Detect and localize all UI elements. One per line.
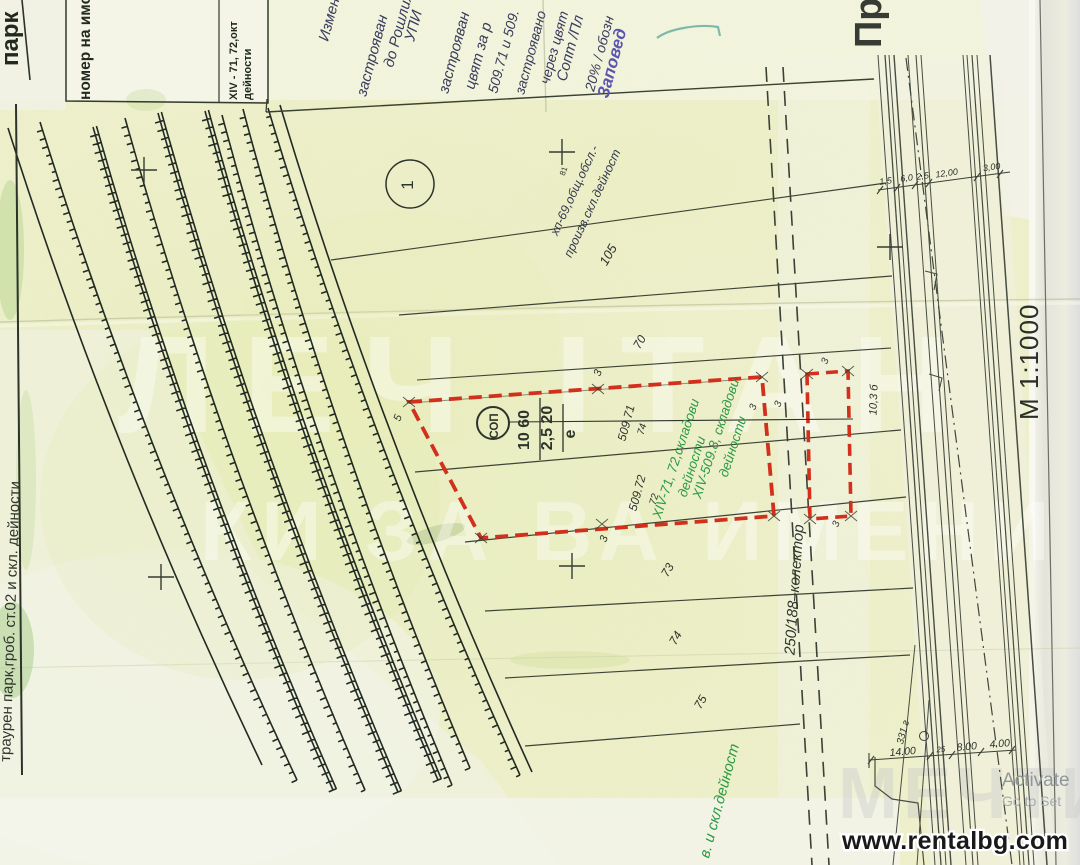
svg-text:Go to Set: Go to Set	[1002, 793, 1061, 809]
svg-text:14.00: 14.00	[889, 745, 916, 759]
svg-text:2,5: 2,5	[915, 170, 931, 182]
svg-text:25: 25	[935, 745, 946, 755]
svg-text:СОП: СОП	[489, 413, 501, 438]
svg-text:2,5 20: 2,5 20	[539, 406, 556, 451]
svg-text:1,5: 1,5	[879, 175, 894, 187]
svg-text:Activate: Activate	[1002, 770, 1070, 791]
svg-text:www.rentalbg.com: www.rentalbg.com	[841, 827, 1068, 855]
svg-text:парк: парк	[0, 10, 24, 66]
svg-text:1: 1	[398, 180, 417, 189]
svg-text:номер на имо: номер на имо	[77, 0, 94, 100]
svg-text:8.00: 8.00	[956, 740, 978, 754]
svg-text:дейности: дейности	[242, 49, 254, 100]
svg-text:XIV - 71, 72,окт: XIV - 71, 72,окт	[228, 21, 240, 100]
svg-text:е: е	[562, 429, 579, 438]
svg-text:Про: Про	[848, 0, 890, 48]
svg-text:4.00: 4.00	[989, 737, 1011, 751]
svg-text:М 1:1000: М 1:1000	[1014, 304, 1044, 420]
svg-text:10 60: 10 60	[516, 410, 533, 450]
svg-text:6,0: 6,0	[900, 172, 914, 184]
svg-text:10,3 б: 10,3 б	[867, 384, 880, 416]
